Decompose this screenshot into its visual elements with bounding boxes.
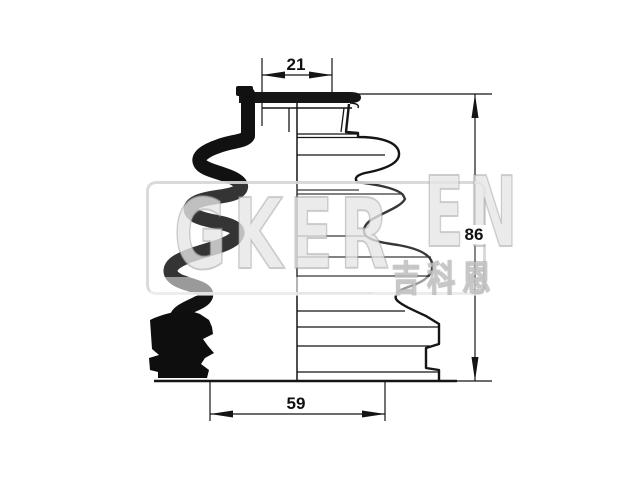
dim-label-top-width: 21 bbox=[287, 56, 306, 73]
section-base-blob bbox=[149, 310, 214, 378]
watermark-brand-left: GKER bbox=[174, 186, 396, 283]
watermark-brand-cn: 吉科恩 bbox=[392, 263, 498, 298]
cap-dark-band bbox=[239, 92, 361, 103]
dim-label-bottom-width: 59 bbox=[287, 395, 306, 412]
arrowhead-down bbox=[472, 357, 479, 381]
neck-inner-line-right bbox=[341, 108, 344, 132]
arrowhead-right bbox=[362, 411, 385, 418]
technical-drawing: GKER EN 吉科恩 21 86 59 bbox=[0, 0, 640, 480]
arrowhead-up bbox=[472, 94, 479, 118]
dim-label-overall-height: 86 bbox=[462, 225, 487, 244]
arrowhead-left bbox=[262, 72, 285, 79]
arrowhead-left bbox=[210, 411, 233, 418]
arrowhead-right bbox=[309, 72, 332, 79]
watermark-brand-right: EN bbox=[424, 164, 522, 261]
